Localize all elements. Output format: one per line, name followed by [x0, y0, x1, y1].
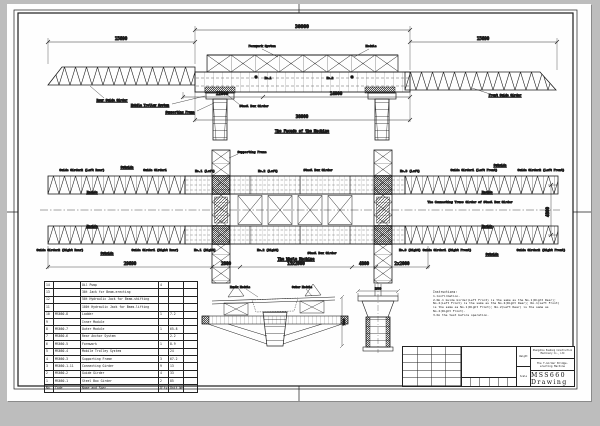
rear-guide-girder: [48, 67, 195, 85]
table-cell: Ladder: [81, 311, 159, 318]
table-cell: 12: [45, 296, 54, 303]
parts-table-body: 14Oil Pump41330t Jack for Beam-erecting1…: [45, 282, 198, 385]
plan-guide-girder-lower-left: [48, 226, 185, 244]
table-cell: 11: [45, 304, 54, 311]
elevation-view: 15690 38000 15690 12000 14000 38000 The …: [46, 24, 559, 140]
table-cell: 2: [159, 378, 169, 385]
table-cell: 1: [159, 341, 169, 348]
label-no1-left: No.1 (Left): [195, 169, 215, 173]
formwork-truss: [207, 55, 398, 72]
label-gg1-left-front: Guide Girder1 (Left Front): [451, 168, 498, 172]
dim-front-guide-length: 15690: [477, 36, 490, 41]
table-cell: 1: [159, 311, 169, 318]
label-outside-3: Outside: [101, 251, 114, 255]
label-plan-supporting-frame: Supporting Frame: [238, 150, 267, 154]
table-cell: [159, 289, 169, 296]
table-cell: 9: [159, 363, 169, 370]
table-cell: [184, 341, 198, 348]
note-line: 3.Do the test before operation.: [433, 314, 561, 318]
signature-strip: [462, 377, 516, 386]
label-no1-right: No.1 (Right): [194, 248, 216, 252]
table-cell: MS660-1: [54, 378, 81, 385]
label-supporting-frame: Supporting Frame: [166, 110, 195, 114]
table-cell: 3: [159, 355, 169, 362]
label-inside-3: Inside: [87, 224, 98, 228]
dim-machine-width: 4800: [545, 206, 550, 217]
table-cell: 3: [45, 363, 54, 370]
table-cell: [184, 363, 198, 370]
label-outside-4: Outside: [486, 252, 499, 256]
cross-sections: Inner Module Outer Module 7500 1800: [202, 283, 400, 353]
parts-table: 14Oil Pump41330t Jack for Beam-erecting1…: [44, 281, 197, 386]
company-name: Zhengzhou Huadong Construction Machinery…: [531, 347, 574, 358]
plan-title: The Whole Machine: [278, 257, 315, 261]
label-outside-1: Outside: [121, 165, 134, 169]
table-cell: [169, 318, 184, 325]
table-cell: [184, 289, 198, 296]
table-cell: 14: [45, 282, 54, 289]
label-gg2-left-front: Guide Girder2 (Left Front): [518, 168, 565, 172]
table-cell: [169, 304, 184, 311]
approval-area: [462, 347, 517, 386]
table-cell: Guide Girder: [81, 370, 159, 377]
table-cell: [184, 318, 198, 325]
table-cell: [184, 304, 198, 311]
table-cell: [54, 282, 81, 289]
section-front: [202, 284, 348, 348]
dim-2x2000: 2x2000: [394, 261, 410, 266]
note-line: 2.No.1 Guide Girder(Left Front) is the s…: [433, 299, 561, 314]
label-no3-right: No.3 (Right): [399, 248, 421, 252]
label-mobile-trolley-system: Mobile Trolley System: [131, 103, 169, 107]
scale-label: Scale: [517, 367, 530, 386]
notes-lines: 1.Confirmation.2.No.1 Guide Girder(Left …: [433, 295, 561, 318]
table-cell: 5: [45, 348, 54, 355]
label-inside-1: Inside: [87, 190, 98, 194]
table-cell: MS660-2: [54, 370, 81, 377]
table-row: 4MS660-3Supporting Frame367.2: [45, 355, 198, 362]
weight-scale-cells: Weight Scale: [517, 347, 531, 386]
table-cell: [169, 282, 184, 289]
table-cell: Supporting Frame: [81, 355, 159, 362]
label-segment-no1: No.1: [265, 76, 272, 80]
table-cell: MS660-8: [54, 311, 81, 318]
detail-bubble: [350, 75, 353, 78]
table-cell: Outer Module: [81, 326, 159, 333]
label-steel-box-girder: Steel Box Girder: [240, 104, 269, 108]
table-cell: 50t Hydraulic Jack for Beam-shifting: [81, 296, 159, 303]
table-cell: MS660-3: [54, 355, 81, 362]
table-cell: 24: [169, 348, 184, 355]
table-cell: [159, 333, 169, 340]
supporting-frame-right: [368, 93, 396, 140]
elevation-title: The Facade of the Machine: [275, 129, 329, 133]
table-cell: 4: [159, 282, 169, 289]
plan-guide-girder-upper-left: [48, 176, 185, 194]
table-cell: 7.2: [169, 311, 184, 318]
table-row: 11100t Hydraulic Jack for Beam-lifting: [45, 304, 198, 311]
label-rear-guide-girder: Rear Guide Girder: [97, 98, 128, 102]
supporting-frame-left: [206, 93, 234, 140]
table-cell: [184, 296, 198, 303]
header-remark: [184, 385, 198, 392]
table-row: 14Oil Pump4: [45, 282, 198, 289]
label-inside-2: Inside: [482, 190, 493, 194]
table-cell: 33: [169, 370, 184, 377]
parts-table-header-row: No. Code Name and Spec. Q'ty Unit Weight: [45, 385, 198, 392]
dim-rear-overall: 29690: [124, 261, 137, 266]
header-name: Name and Spec.: [81, 385, 159, 392]
table-cell: [184, 370, 198, 377]
header-weight: Unit Weight: [169, 385, 184, 392]
table-cell: MS660-1-11: [54, 363, 81, 370]
table-cell: Steel Box Girder: [81, 378, 159, 385]
table-cell: 10: [45, 311, 54, 318]
table-cell: MS660-6: [54, 333, 81, 340]
label-no2-right: No.2 (Right): [257, 248, 279, 252]
dim-trolley: 12000: [216, 91, 229, 96]
label-box-upper: Steel Box Girder: [304, 168, 333, 172]
label-gg2-right-rear: Guide Girder2 (Right Rear): [37, 248, 84, 252]
dim-span-top: 38000: [295, 24, 309, 30]
instructions-notes: Instructions: 1.Confirmation.2.No.1 Guid…: [433, 291, 561, 317]
table-cell: [159, 318, 169, 325]
table-row: 6MS660-5Formwork18.9: [45, 341, 198, 348]
table-cell: 6: [45, 341, 54, 348]
table-cell: 4: [159, 370, 169, 377]
table-cell: MS660-5: [54, 341, 81, 348]
dim-rear-guide-length: 15690: [115, 36, 128, 41]
table-cell: 4: [45, 355, 54, 362]
table-cell: 13: [169, 363, 184, 370]
label-segment-no2: No.2: [327, 76, 334, 80]
table-cell: [184, 333, 198, 340]
table-cell: [54, 296, 81, 303]
table-cell: 9: [45, 318, 54, 325]
label-front-guide-girder: Front Guide Girder: [489, 93, 522, 97]
dim-section-top: 1800: [375, 287, 382, 291]
table-row: 9Inner Module: [45, 318, 198, 325]
table-cell: [184, 355, 198, 362]
detail-bubble: [254, 75, 257, 78]
table-cell: MS660-4: [54, 348, 81, 355]
table-cell: 8: [45, 326, 54, 333]
weight-label: Weight: [517, 347, 530, 367]
title-block-right: Zhengzhou Huadong Construction Machinery…: [531, 347, 574, 386]
label-gg1-right-rear: Guide Girder1 (Right Rear): [132, 248, 179, 252]
dim-span-bottom: 38000: [296, 114, 309, 119]
table-row: 2MS660-2Guide Girder433: [45, 370, 198, 377]
table-cell: 1: [45, 378, 54, 385]
label-gg1: Guide Girder1: [143, 168, 167, 172]
section-side: [356, 283, 400, 353]
table-cell: [184, 378, 198, 385]
product-name: The T-Girder Bridge-erecting Machine: [531, 358, 574, 371]
table-row: 8MS660-7Outer Module165.8: [45, 326, 198, 333]
screenshot-root: 15690 38000 15690 12000 14000 38000 The …: [0, 0, 600, 426]
table-cell: Rear Anchor System: [81, 333, 159, 340]
dim-section-height: 7500: [342, 318, 346, 325]
table-cell: Inner Module: [81, 318, 159, 325]
label-box-lower: Steel Box Girder: [308, 251, 337, 255]
table-cell: 13: [45, 289, 54, 296]
table-cell: [159, 304, 169, 311]
front-guide-girder: [405, 72, 556, 90]
table-cell: 67.2: [169, 355, 184, 362]
table-cell: [159, 348, 169, 355]
table-cell: 8.9: [169, 341, 184, 348]
table-row: 3MS660-1-11Connecting Girder913: [45, 363, 198, 370]
table-cell: Oil Pump: [81, 282, 159, 289]
table-row: 1330t Jack for Beam-erecting: [45, 289, 198, 296]
label-connecting-truss: The Connecting Truss Girder of Steel Box…: [428, 200, 513, 204]
table-cell: 100t Hydraulic Jack for Beam-lifting: [81, 304, 159, 311]
label-gg2-right-front: Guide Girder2 (Right Front): [517, 248, 566, 252]
label-formwork-system: Formwork System: [248, 44, 275, 48]
drawing-number: MSS660 Drawing: [531, 371, 574, 386]
table-cell: 1: [159, 326, 169, 333]
revision-grid: [403, 347, 462, 386]
table-cell: 2: [45, 370, 54, 377]
table-cell: 30t Jack for Beam-erecting: [81, 289, 159, 296]
table-cell: [184, 311, 198, 318]
header-code: Code: [54, 385, 81, 392]
table-row: 10MS660-8Ladder17.2: [45, 311, 198, 318]
table-cell: [54, 289, 81, 296]
table-cell: [184, 348, 198, 355]
table-cell: MS660-7: [54, 326, 81, 333]
table-cell: [159, 296, 169, 303]
table-row: 1250t Hydraulic Jack for Beam-shifting: [45, 296, 198, 303]
table-cell: [54, 304, 81, 311]
table-cell: [54, 318, 81, 325]
label-no2-left: No.2 (Left): [258, 169, 278, 173]
table-cell: Connecting Girder: [81, 363, 159, 370]
label-outer-module: Outer Module: [292, 285, 313, 289]
table-cell: [169, 289, 184, 296]
label-module: Module: [366, 44, 377, 48]
dim-4800: 4800: [359, 261, 370, 266]
mobile-trolley: [365, 87, 395, 93]
label-outside-2: Outside: [494, 163, 507, 167]
plan-view: 29690 2800 15x2000 4800 2x2000 4800 The …: [37, 150, 566, 283]
table-row: 1MS660-1Steel Box Girder285: [45, 378, 198, 385]
dim-mid: 14000: [330, 91, 343, 96]
label-gg2-left-rear: Guide Girder2 (Left Rear): [59, 168, 104, 172]
table-cell: [184, 326, 198, 333]
dim-15x2000: 15x2000: [287, 261, 305, 266]
header-no: No.: [45, 385, 54, 392]
label-inside-4: Inside: [482, 224, 493, 228]
table-cell: 85: [169, 378, 184, 385]
label-gg1-right-front: Guide Girder1 (Right Front): [423, 248, 472, 252]
table-cell: [184, 282, 198, 289]
dim-2800: 2800: [221, 261, 232, 266]
table-cell: [169, 296, 184, 303]
table-row: 5MS660-4Mobile Trolley System24: [45, 348, 198, 355]
plan-guide-girder-lower-right: [405, 226, 558, 244]
table-cell: 2.2: [169, 333, 184, 340]
table-cell: Formwork: [81, 341, 159, 348]
label-inner-module: Inner Module: [230, 285, 251, 289]
header-qty: Q'ty: [159, 385, 169, 392]
table-cell: 7: [45, 333, 54, 340]
table-cell: 65.8: [169, 326, 184, 333]
table-row: 7MS660-6Rear Anchor System2.2: [45, 333, 198, 340]
title-block: Weight Scale Zhengzhou Huadong Construct…: [402, 346, 575, 387]
plan-tower-right: [374, 150, 392, 283]
label-no3-left: No.3 (Left): [400, 169, 420, 173]
table-cell: Mobile Trolley System: [81, 348, 159, 355]
